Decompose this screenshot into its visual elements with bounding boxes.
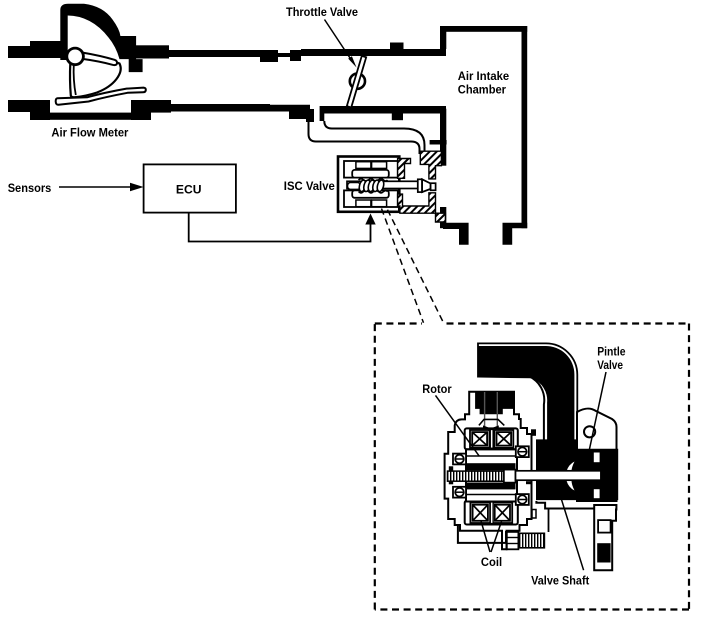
- svg-text:ISC Valve: ISC Valve: [284, 179, 335, 193]
- svg-text:ECU: ECU: [176, 183, 202, 197]
- svg-text:Rotor: Rotor: [422, 382, 452, 396]
- svg-text:Valve: Valve: [597, 358, 623, 372]
- svg-text:Sensors: Sensors: [8, 181, 52, 195]
- svg-text:Air Flow Meter: Air Flow Meter: [51, 126, 128, 140]
- svg-text:Valve Shaft: Valve Shaft: [531, 574, 589, 588]
- svg-text:Throttle Valve: Throttle Valve: [286, 5, 358, 19]
- svg-text:Coil: Coil: [481, 555, 502, 569]
- svg-text:Pintle: Pintle: [597, 344, 626, 358]
- svg-text:Chamber: Chamber: [458, 82, 507, 96]
- svg-text:Air Intake: Air Intake: [458, 69, 510, 83]
